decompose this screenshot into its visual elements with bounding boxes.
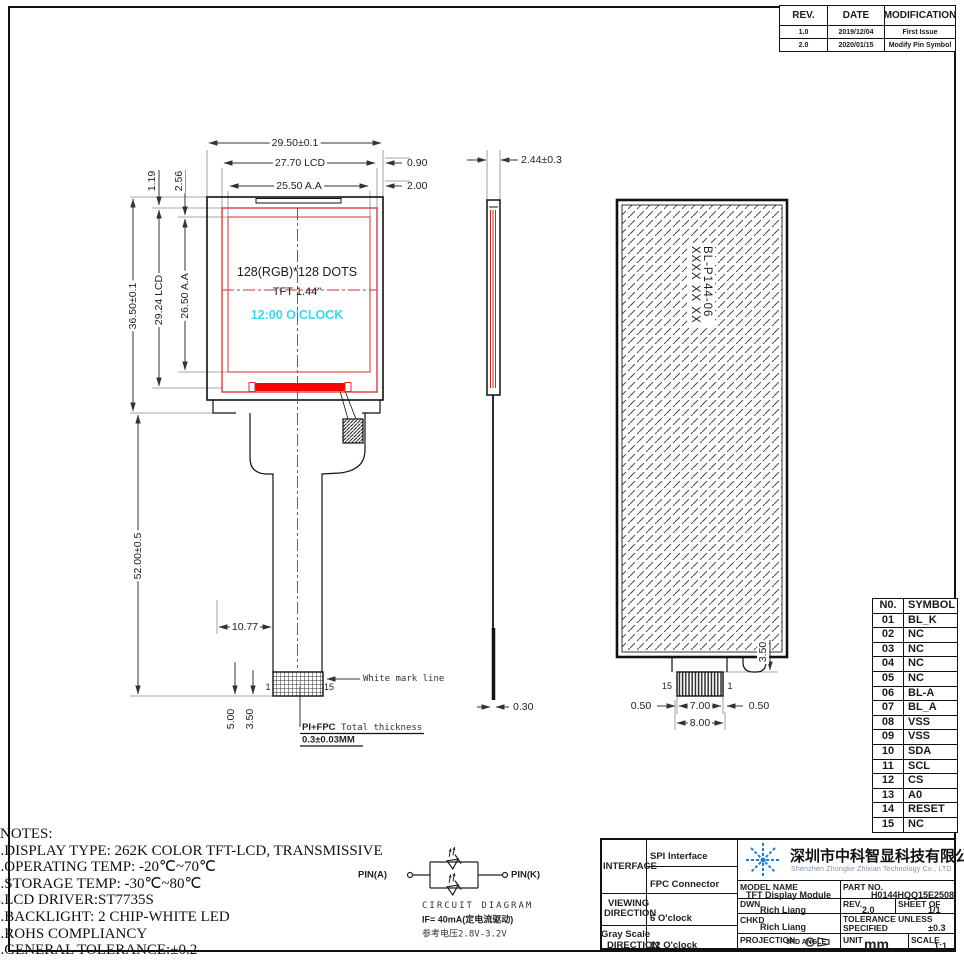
pin-no: 09 bbox=[873, 730, 903, 744]
back-model-line1: BL-P144-06 bbox=[701, 246, 713, 324]
dim-width-lcd: 27.70 LCD bbox=[273, 157, 327, 169]
pin-symbol: CS bbox=[903, 774, 957, 788]
table-row: 14RESET bbox=[873, 802, 957, 817]
screen-size-text: TFT 1.44" bbox=[273, 286, 321, 298]
circuit-diagram-linework bbox=[408, 846, 508, 895]
pin-no-header: N0. bbox=[873, 599, 903, 613]
front-pin-1-label: 1 bbox=[263, 682, 272, 692]
date-col-header: DATE bbox=[827, 5, 885, 26]
rev-row-date: 2020/01/15 bbox=[827, 38, 885, 52]
tolerance-value: ±0.3 bbox=[928, 923, 945, 933]
table-row: 08VSS bbox=[873, 715, 957, 730]
table-row: 07BL_A bbox=[873, 700, 957, 715]
drawing-linework bbox=[0, 0, 964, 960]
pin-no: 15 bbox=[873, 818, 903, 832]
pin-no: 04 bbox=[873, 657, 903, 671]
dim-500: 5.00 bbox=[225, 707, 237, 731]
side-view-linework bbox=[467, 150, 518, 707]
pin-no: 07 bbox=[873, 701, 903, 715]
dim-height-aa: 26.50 A.A bbox=[179, 271, 191, 321]
pin-no: 13 bbox=[873, 789, 903, 803]
note-line: 4.LCD DRIVER:ST7735S bbox=[0, 892, 383, 909]
back-pin-1-label: 1 bbox=[725, 681, 734, 691]
table-row: 01BL_K bbox=[873, 613, 957, 628]
dwn-label: DWN bbox=[740, 899, 760, 909]
chkd-value: Rich Liang bbox=[760, 922, 806, 932]
note-line: 5.BACKLIGHT: 2 CHIP-WHITE LED bbox=[0, 909, 383, 926]
rev-row-value: 2.0 bbox=[779, 38, 828, 52]
dim-height-lcd: 29.24 LCD bbox=[153, 273, 165, 327]
rev-row-modification: Modify Pin Symbol bbox=[884, 38, 956, 52]
circuit-pin-k-label: PIN(K) bbox=[511, 870, 540, 881]
dim-edge-090: 0.90 bbox=[407, 157, 427, 169]
circuit-voltage-note: 参考电压2.8V-3.2V bbox=[422, 927, 507, 940]
pin-no: 05 bbox=[873, 672, 903, 686]
third-angle-projection-icon bbox=[804, 936, 832, 948]
pin-symbol: SDA bbox=[903, 745, 957, 759]
pin-symbol: BL_K bbox=[903, 614, 957, 628]
table-row: 04NC bbox=[873, 656, 957, 671]
dim-edge-256: 2.56 bbox=[173, 169, 185, 193]
pin-symbol-header: SYMBOL bbox=[903, 599, 957, 613]
note-line: 6.ROHS COMPLIANCY bbox=[0, 926, 383, 943]
table-row: 03NC bbox=[873, 642, 957, 657]
pin-no: 10 bbox=[873, 745, 903, 759]
table-row: 11SCL bbox=[873, 759, 957, 774]
rev-row-modification: First Issue bbox=[884, 25, 956, 39]
table-row: 15NC bbox=[873, 817, 957, 832]
gray-scale-value: 12 O'clock bbox=[650, 940, 697, 951]
back-pin-15-label: 15 bbox=[660, 681, 674, 691]
viewing-direction-label-2: DIRECTION bbox=[604, 908, 656, 919]
table-row: 06BL-A bbox=[873, 686, 957, 701]
rev-row-date: 2019/12/04 bbox=[827, 25, 885, 39]
notes-title: NOTES: bbox=[0, 826, 383, 843]
dim-350: 3.50 bbox=[244, 707, 256, 731]
pin-symbol: A0 bbox=[903, 789, 957, 803]
pin-symbol-table: N0.SYMBOL 01BL_K 02NC 03NC 04NC 05NC 06B… bbox=[872, 598, 958, 833]
pin-symbol: NC bbox=[903, 657, 957, 671]
pin-symbol: SCL bbox=[903, 760, 957, 774]
dim-edge-119: 1.19 bbox=[146, 169, 158, 193]
table-row: 05NC bbox=[873, 671, 957, 686]
thickness-value: 0.3±0.03MM bbox=[302, 735, 355, 746]
tolerance-label-2: SPECIFIED bbox=[843, 923, 888, 933]
rev-row-value: 1.0 bbox=[779, 25, 828, 39]
table-row: 10SDA bbox=[873, 744, 957, 759]
circuit-pin-a-label: PIN(A) bbox=[358, 870, 387, 881]
dim-tail-offset: 10.77 bbox=[230, 621, 260, 633]
revision-table: REV. DATE MODIFICATION 1.0 2019/12/04 Fi… bbox=[780, 6, 956, 52]
pi-fpc-label: PI+FPC bbox=[302, 722, 336, 733]
pin-no: 08 bbox=[873, 716, 903, 730]
company-name-en: Shenzhen Zhongke Zhixian Technology Co.,… bbox=[791, 866, 952, 873]
dim-back-050r: 0.50 bbox=[747, 700, 771, 712]
viewing-direction-value: 6 O'clock bbox=[650, 913, 692, 924]
interface-value-2: FPC Connector bbox=[650, 879, 719, 890]
table-row: 02NC bbox=[873, 627, 957, 642]
pin-no: 02 bbox=[873, 628, 903, 642]
gray-scale-label-1: Gray Scale bbox=[601, 929, 650, 940]
unit-value: mm bbox=[864, 936, 889, 952]
rev-col-header: REV. bbox=[779, 5, 828, 26]
screen-resolution-text: 128(RGB)*128 DOTS bbox=[237, 265, 357, 279]
dim-fpc-length: 52.00±0.5 bbox=[132, 531, 144, 582]
dim-side-fpc: 0.30 bbox=[513, 701, 533, 713]
circuit-diagram-title: CIRCUIT DIAGRAM bbox=[422, 901, 533, 911]
pin-no: 06 bbox=[873, 687, 903, 701]
table-row: 09VSS bbox=[873, 729, 957, 744]
total-thickness-label: Total thickness bbox=[336, 723, 423, 733]
interface-value-1: SPI Interface bbox=[650, 851, 708, 862]
dim-back-800: 8.00 bbox=[688, 717, 712, 729]
dim-back-350: 3.50 bbox=[757, 640, 769, 664]
table-row: 12CS bbox=[873, 773, 957, 788]
pin-no: 03 bbox=[873, 643, 903, 657]
note-line: 2.OPERATING TEMP: -20℃~70℃ bbox=[0, 859, 383, 876]
dim-edge-200: 2.00 bbox=[407, 180, 427, 192]
back-model-line2: XXXX XX XX bbox=[689, 246, 701, 324]
note-line: 3.STORAGE TEMP: -30℃~80℃ bbox=[0, 876, 383, 893]
pin-symbol: RESET bbox=[903, 803, 957, 817]
dim-back-050l: 0.50 bbox=[629, 700, 653, 712]
dim-height-total: 36.50±0.1 bbox=[127, 281, 139, 332]
white-mark-line-label: White mark line bbox=[363, 674, 444, 684]
back-model-label: BL-P144-06 XXXX XX XX bbox=[687, 243, 715, 327]
pin-symbol: NC bbox=[903, 628, 957, 642]
note-line: 7.GENERAL TOLERANCE:±0.2 bbox=[0, 942, 383, 959]
dim-width-aa: 25.50 A.A bbox=[274, 180, 324, 192]
scale-value: 1:1 bbox=[934, 941, 947, 951]
circuit-current-note: IF= 40mA(定电流驱动) bbox=[422, 913, 513, 926]
front-pin-15-label: 15 bbox=[322, 682, 336, 692]
company-logo-icon bbox=[743, 841, 783, 879]
company-name-cn: 深圳市中科智显科技有限公司 bbox=[790, 845, 964, 866]
pin-no: 12 bbox=[873, 774, 903, 788]
pin-symbol: NC bbox=[903, 643, 957, 657]
modification-col-header: MODIFICATION bbox=[884, 5, 956, 26]
pin-no: 14 bbox=[873, 803, 903, 817]
unit-label: UNIT bbox=[843, 935, 863, 945]
dim-side-thickness: 2.44±0.3 bbox=[521, 154, 562, 166]
pin-symbol: BL_A bbox=[903, 701, 957, 715]
pin-symbol: NC bbox=[903, 818, 957, 832]
table-row: 13A0 bbox=[873, 788, 957, 803]
pin-no: 01 bbox=[873, 614, 903, 628]
notes-block: NOTES: 1.DISPLAY TYPE: 262K COLOR TFT-LC… bbox=[0, 826, 383, 959]
rev-label: REV. bbox=[843, 899, 862, 909]
drawing-sheet: 29.50±0.1 27.70 LCD 25.50 A.A 0.90 2.00 … bbox=[0, 0, 964, 960]
pin-symbol: VSS bbox=[903, 716, 957, 730]
pin-symbol: BL-A bbox=[903, 687, 957, 701]
dim-width-total: 29.50±0.1 bbox=[270, 137, 321, 149]
pin-no: 11 bbox=[873, 760, 903, 774]
dim-back-700: 7.00 bbox=[688, 700, 712, 712]
note-line: 1.DISPLAY TYPE: 262K COLOR TFT-LCD, TRAN… bbox=[0, 843, 383, 860]
interface-label: INTERFACE bbox=[603, 861, 657, 872]
pin-symbol: NC bbox=[903, 672, 957, 686]
dwn-value: Rich Liang bbox=[760, 905, 806, 915]
screen-clock-text: 12:00 O'CLOCK bbox=[251, 308, 344, 322]
pin-symbol: VSS bbox=[903, 730, 957, 744]
